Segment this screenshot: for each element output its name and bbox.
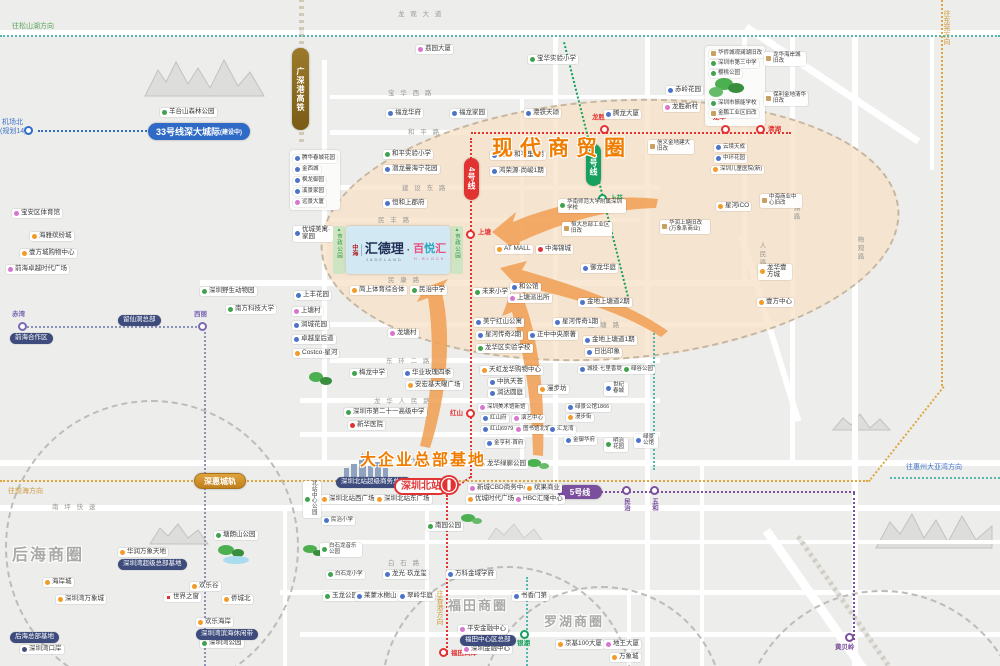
poi-text: 京基100大厦 xyxy=(565,641,602,648)
poi-label: 优城时代广场 xyxy=(466,495,516,504)
poi-label: 万科金域学府 xyxy=(446,570,496,579)
metro-station-label: 西丽 xyxy=(194,312,207,319)
poi-label: Costco·星河 xyxy=(293,349,339,358)
poi-label: 深圳市第二十一高级中学 xyxy=(344,408,427,417)
poi-text: 书香门第 xyxy=(521,593,547,600)
poi-o-icon xyxy=(568,415,573,420)
poi-text: 世界之窗 xyxy=(173,594,199,601)
poi-text: 赤岭花园 xyxy=(675,87,701,94)
poi-text: 港铁天颂 xyxy=(533,110,559,117)
poi-b-icon xyxy=(295,189,300,194)
line33-pill: 33号线深大城际(建设中) xyxy=(148,123,250,140)
poi-b-icon xyxy=(294,337,299,342)
poi-o-icon xyxy=(352,288,357,293)
poi-label: 溪景家园 xyxy=(293,188,326,196)
coast-line-south xyxy=(204,332,206,666)
poi-text: 腾龙大厦 xyxy=(613,111,639,118)
poi-label: 演艺中心 xyxy=(512,415,545,423)
poi-text: 世纪春城 xyxy=(613,383,626,395)
poi-label: 腾龙大厦 xyxy=(604,110,641,119)
poi-text: 欢乐谷 xyxy=(199,583,219,590)
poi-label: 平安金融中心 xyxy=(458,625,508,634)
poi-text: 深圳湾万象城 xyxy=(65,596,104,603)
poi-b-icon xyxy=(716,145,721,150)
coast-line xyxy=(22,326,205,328)
poi-text: 壹方城购物中心 xyxy=(29,250,75,257)
direction-label: 往东莞方向 xyxy=(941,10,951,45)
poi-label: 龙华海岸城旧改 xyxy=(764,52,806,66)
poi-label: 深圳金融中心 xyxy=(462,645,512,654)
park-strip-left: ▲ 市政公园 xyxy=(333,226,345,274)
poi-p-icon xyxy=(510,296,515,301)
road xyxy=(930,36,934,170)
poi-label: 海雅缤纷城 xyxy=(30,232,74,241)
poi-text: 深圳儿童医院(新) xyxy=(720,167,762,173)
poi-b-icon xyxy=(385,201,390,206)
poi-text: 新城CBD商务中心 xyxy=(477,485,530,492)
poi-text: 华南师范大学附属深圳学校 xyxy=(567,200,624,212)
poi-text: 信义金地建大旧改 xyxy=(657,141,692,153)
poi-g-icon xyxy=(624,367,629,372)
poi-text: 平安金融中心 xyxy=(467,626,506,633)
poi-label: 深圳北站西广场 xyxy=(320,495,377,504)
poi-label: 正中中央原著 xyxy=(528,331,578,340)
metro-station-icon xyxy=(18,322,27,331)
poi-g-icon xyxy=(711,61,716,66)
poi-r-icon xyxy=(538,247,543,252)
poi-text: 深圳湾公园 xyxy=(209,640,242,647)
poi-text: 海岸城 xyxy=(52,579,72,586)
poi-b-icon xyxy=(487,441,492,446)
poi-text: 宝安区体育馆 xyxy=(21,210,60,217)
poi-t-icon xyxy=(766,56,771,61)
poi-text: 润达圆庭 xyxy=(497,390,523,397)
poi-text: 深圳野生动物园 xyxy=(209,288,255,295)
poi-label: 欢乐谷 xyxy=(190,582,221,591)
poi-text: 绿景公馆 xyxy=(643,435,656,447)
poi-label: 龙胜新村 xyxy=(663,103,700,112)
poi-o-icon xyxy=(22,251,27,256)
metro-station-label: 红山 xyxy=(450,411,463,418)
poi-g-icon xyxy=(202,289,207,294)
metro-station-icon xyxy=(439,648,448,657)
metro-station-label: 上塘 xyxy=(478,230,491,237)
poi-b-icon xyxy=(483,427,488,432)
poi-label: 云境天成 xyxy=(714,144,747,152)
poi-text: 缤果商业 xyxy=(534,485,560,492)
poi-label: 南方科技大学 xyxy=(226,305,276,314)
poi-label: 明治花园 xyxy=(604,438,628,452)
poi-label: 星河传奇1期 xyxy=(553,318,600,327)
poi-g-icon xyxy=(322,547,327,552)
poi-b-icon xyxy=(636,438,641,443)
poi-label: 港铁天颂 xyxy=(524,109,561,118)
poi-text: 深圳美术馆新馆 xyxy=(487,405,526,411)
poi-g-icon xyxy=(162,110,167,115)
poi-label: 红山府 xyxy=(481,415,509,423)
road-name-label: 宝 华 西 路 xyxy=(388,87,433,97)
poi-text: 龙塘村 xyxy=(397,330,417,337)
poi-text: 华润万象天地 xyxy=(127,549,166,556)
line5-south xyxy=(853,493,855,640)
poi-text: 金御华府 xyxy=(573,438,595,444)
poi-text: 星河iCO xyxy=(725,203,749,210)
poi-text: 明治花园 xyxy=(613,439,626,451)
poi-p-icon xyxy=(606,642,611,647)
poi-text: 民治中学 xyxy=(419,287,445,294)
poi-text: 红山府 xyxy=(490,416,507,422)
poi-label: 深圳美术馆新馆 xyxy=(478,404,528,412)
poi-label: 新华医院 xyxy=(348,421,385,430)
poi-text: 和平实验小学 xyxy=(392,151,431,158)
poi-label: 世界之窗 xyxy=(164,593,201,602)
poi-label: 深圳儿童医院(新) xyxy=(711,166,764,174)
poi-label: 汇龙湾 xyxy=(548,426,576,434)
metro-station-icon xyxy=(466,230,475,239)
poi-label: 漫步街 xyxy=(566,414,594,422)
poi-text: 莱蒙水榭山 xyxy=(364,593,397,600)
poi-text: 深圳市振能学校 xyxy=(718,101,757,107)
poi-g-icon xyxy=(530,57,535,62)
poi-b-icon xyxy=(483,416,488,421)
poi-b-icon xyxy=(580,300,585,305)
poi-b-icon xyxy=(296,293,301,298)
poi-text: 保利金地清华旧改 xyxy=(773,93,806,105)
poi-label: 信义金地建大旧改 xyxy=(648,140,694,154)
metro-station-icon xyxy=(756,125,765,134)
poi-label: 红山6979 xyxy=(481,426,515,434)
poi-text: 白石龙小学 xyxy=(335,572,363,578)
road-name-label: 东 环 二 路 xyxy=(386,355,431,365)
poi-label: 壹方中心 xyxy=(757,298,794,307)
poi-b-icon xyxy=(606,112,611,117)
poi-label: 华侨城观澜湖旧改 xyxy=(709,50,764,58)
poi-text: HBC汇隆中心 xyxy=(523,496,563,503)
direction-label: 往前海方向 xyxy=(8,486,43,496)
poi-label: 赤岭花园 xyxy=(666,86,703,95)
poi-b-icon xyxy=(405,371,410,376)
title-enterprise-base: 大企业总部基地 xyxy=(360,446,486,470)
poi-b-icon xyxy=(295,178,300,183)
poi-text: 地王大厦 xyxy=(613,641,639,648)
poi-label: 世纪春城 xyxy=(604,382,628,396)
poi-g-icon xyxy=(475,290,480,295)
poi-b-icon xyxy=(448,572,453,577)
poi-b-icon xyxy=(566,438,571,443)
poi-text: 万科金域学府 xyxy=(455,571,494,578)
poi-b-icon xyxy=(385,167,390,172)
poi-label: 前海卓越时代广场 xyxy=(6,265,69,274)
poi-label: 枫龙御园 xyxy=(293,177,326,185)
poi-label: 深圳野生动物园 xyxy=(200,287,257,296)
poi-text: 龙华区实验学校 xyxy=(485,345,531,352)
poi-b-icon xyxy=(583,266,588,271)
poi-text: 塘朗山公园 xyxy=(223,532,256,539)
metro-station-icon xyxy=(520,630,529,639)
map-canvas: 广深港高铁 xyxy=(0,0,1000,666)
poi-o-icon xyxy=(58,597,63,602)
poi-text: 鸿荣源·尚峻1期 xyxy=(499,168,544,175)
poi-text: 万象城 xyxy=(619,654,639,661)
poi-o-icon xyxy=(558,642,563,647)
poi-text: 深圳市第二十一高级中学 xyxy=(353,409,425,416)
poi-b-icon xyxy=(514,594,519,599)
poi-g-icon xyxy=(346,410,351,415)
poi-label: 绿景公馆 xyxy=(634,434,658,448)
gsg-rail-pill: 广深港高铁 xyxy=(292,48,309,130)
business-circle-title: 后海商圈 xyxy=(12,541,84,565)
road-name-label: 民 康 路 xyxy=(388,274,421,284)
poi-text: 龙华绿廊公园 xyxy=(487,461,526,468)
mid-dashed-line xyxy=(653,330,655,470)
poi-g-icon xyxy=(711,101,716,106)
poi-g-icon xyxy=(305,497,310,502)
poi-p-icon xyxy=(514,416,519,421)
poi-label: 龙华区实验学校 xyxy=(476,344,533,353)
poi-text: 云境天成 xyxy=(723,145,745,151)
area-pill: 深圳湾超级总部基地 xyxy=(118,559,187,570)
poi-label: 白石龙音乐公园 xyxy=(320,543,362,557)
shenhui-rail-north xyxy=(941,0,943,386)
poi-label: 中执天荟 xyxy=(488,378,525,387)
poi-o-icon xyxy=(497,247,502,252)
poi-g-icon xyxy=(328,572,333,577)
poi-text: 漫步街 xyxy=(575,415,592,421)
poi-g-icon xyxy=(560,203,565,208)
poi-label: 美宁红山公寓 xyxy=(474,318,524,327)
poi-text: 正中中央原著 xyxy=(537,332,576,339)
poi-text: 中环花园 xyxy=(723,156,745,162)
poi-text: 星河传奇2期 xyxy=(485,332,521,339)
poi-text: 优城美寓·家园 xyxy=(302,227,331,241)
poi-b-icon xyxy=(512,285,517,290)
poi-text: 绿景公馆1866 xyxy=(575,405,609,411)
poi-p-icon xyxy=(516,427,521,432)
poi-g-icon xyxy=(202,641,207,646)
poi-text: 金亨利·首府 xyxy=(494,441,523,447)
poi-label: 绿谷公园 xyxy=(622,366,655,374)
poi-r-icon xyxy=(350,423,355,428)
road-name-label: 南 坪 快 速 xyxy=(52,501,97,511)
poi-text: 龙光·玖龙玺 xyxy=(392,571,427,578)
poi-b-icon xyxy=(555,320,560,325)
poi-text: 樱桃公园 xyxy=(718,71,740,77)
poi-g-icon xyxy=(216,533,221,538)
poi-o-icon xyxy=(198,620,203,625)
poi-text: 南园公园 xyxy=(435,523,461,530)
poi-b-icon xyxy=(357,594,362,599)
station-name-pill: 深圳北站 xyxy=(394,478,448,495)
poi-n-icon xyxy=(22,647,27,652)
poi-label: 远景大厦 xyxy=(293,199,326,207)
poi-o-icon xyxy=(718,204,723,209)
poi-label: 简上体育综合体 xyxy=(350,286,407,295)
poi-b-icon xyxy=(295,231,300,236)
poi-text: 华润上塘旧改(万象系商业) xyxy=(669,221,708,233)
metro-station-label: 黄贝岭 xyxy=(835,645,855,652)
poi-o-icon xyxy=(295,351,300,356)
poi-label: 中海商业中心旧改 xyxy=(760,194,802,208)
poi-label: 华润万象天地 xyxy=(118,548,168,557)
poi-text: 汇龙湾 xyxy=(557,427,574,433)
metro-station-label: 银湖 xyxy=(517,641,530,648)
road xyxy=(330,540,1000,544)
poi-label: 龙光·玖龙玺 xyxy=(383,570,429,579)
poi-text: 腾华春城花园 xyxy=(302,156,335,162)
poi-t-icon xyxy=(711,111,716,116)
poi-text: 绿谷公园 xyxy=(631,367,653,373)
poi-p-icon xyxy=(294,309,299,314)
poi-t-icon xyxy=(762,198,767,203)
poi-label: 金地上塘道1期 xyxy=(583,336,637,345)
poi-label: 潜龙曼海宁花园 xyxy=(383,165,440,174)
poi-label: 中海锦城 xyxy=(536,245,573,254)
poi-text: 白石龙音乐公园 xyxy=(329,544,360,556)
poi-t-icon xyxy=(766,96,771,101)
road xyxy=(300,432,660,437)
poi-o-icon xyxy=(45,580,50,585)
huizhou-direction-line xyxy=(890,477,1000,479)
poi-label: 海岸城 xyxy=(43,578,74,587)
poi-g-icon xyxy=(428,524,433,529)
poi-g-icon xyxy=(478,346,483,351)
poi-text: 未来小学 xyxy=(482,289,508,296)
poi-text: 北站中心公园 xyxy=(312,482,319,517)
poi-label: 金亨利·首府 xyxy=(485,440,525,448)
poi-label: 城投·七里香堤 xyxy=(578,366,624,374)
poi-label: 安宏基天曜广场 xyxy=(406,381,463,390)
poi-text: 图书馆北馆 xyxy=(523,427,551,433)
poi-text: Costco·星河 xyxy=(302,350,337,357)
poi-b-icon xyxy=(492,169,497,174)
poi-text: 壹方中心 xyxy=(766,299,792,306)
poi-label: 深圳湾万象城 xyxy=(56,595,106,604)
poi-t-icon xyxy=(711,51,716,56)
area-pill: 福田中心区总部 xyxy=(460,635,516,646)
poi-label: 华业玫瑰四季 xyxy=(403,369,453,378)
poi-label: 天虹龙华购物中心 xyxy=(480,366,543,375)
east-circle xyxy=(740,590,1000,666)
poi-text: 深圳北站东广场 xyxy=(384,496,430,503)
poi-text: 南方科技大学 xyxy=(235,306,274,313)
poi-label: 深圳市振能学校 xyxy=(709,100,759,108)
poi-g-icon xyxy=(385,152,390,157)
metro-station-icon xyxy=(198,322,207,331)
road-name-label: 龙 华 人 民 路 xyxy=(374,395,432,405)
poi-text: 梅龙中学 xyxy=(359,370,385,377)
road-name-label: 龙 观 大 道 xyxy=(398,8,443,18)
poi-label: 深圳北站东广场 xyxy=(375,495,432,504)
poi-label: 宝华实验小学 xyxy=(528,55,578,64)
poi-o-icon xyxy=(192,584,197,589)
poi-o-icon xyxy=(713,167,718,172)
poi-label: 民治小学 xyxy=(322,517,355,525)
poi-label: 白石龙小学 xyxy=(326,571,365,579)
poi-text: 深圳市第三中学 xyxy=(718,61,757,67)
poi-label: 北站中心公园 xyxy=(303,481,321,518)
metro-station-icon xyxy=(845,633,854,642)
metro-station-label: 赤湾 xyxy=(12,312,25,319)
poi-label: 恒大总部工业区旧改 xyxy=(562,222,612,236)
poi-text: 溪景家园 xyxy=(302,189,324,195)
poi-label: 上塘村 xyxy=(292,307,323,316)
poi-text: 前海卓越时代广场 xyxy=(15,266,67,273)
poi-label: 华南师范大学附属深圳学校 xyxy=(558,199,626,213)
poi-label: HBC汇隆中心 xyxy=(514,495,565,504)
poi-label: 上丰花园 xyxy=(294,291,331,300)
poi-text: 金鹏工业区旧改 xyxy=(718,111,757,117)
poi-b-icon xyxy=(716,156,721,161)
poi-p-icon xyxy=(480,405,485,410)
poi-text: 中执天荟 xyxy=(497,379,523,386)
poi-label: 京基100大厦 xyxy=(556,640,604,649)
poi-label: 金地上塘道2期 xyxy=(578,298,632,307)
poi-b-icon xyxy=(295,167,300,172)
logo-brand: 中海 xyxy=(350,244,362,256)
poi-label: 深圳湾口岸 xyxy=(20,645,64,654)
area-pill: 留仙洞总部 xyxy=(118,315,161,326)
poi-text: 金西城 xyxy=(302,167,319,173)
poi-b-icon xyxy=(580,367,585,372)
poi-text: 海雅缤纷城 xyxy=(39,233,72,240)
poi-label: 星河iCO xyxy=(716,202,751,211)
metro-station-label: 五和 xyxy=(650,498,657,511)
poi-text: 龙华海岸城旧改 xyxy=(773,53,804,65)
direction-label: 往香港方向 xyxy=(434,590,444,625)
poi-b-icon xyxy=(550,427,555,432)
direction-label: 往松山湖方向 xyxy=(12,21,54,31)
road-name-label: 民 丰 路 xyxy=(378,214,411,224)
poi-label: 书香门第 xyxy=(512,592,549,601)
poi-g-icon xyxy=(352,371,357,376)
poi-label: 金御华府 xyxy=(564,437,597,445)
poi-o-icon xyxy=(408,383,413,388)
poi-label: 新城CBD商务中心 xyxy=(468,484,532,493)
poi-text: 荔园大厦 xyxy=(425,46,451,53)
logo-sub2: H-BLOCK xyxy=(414,256,446,261)
poi-o-icon xyxy=(540,387,545,392)
poi-text: 润城花园 xyxy=(301,322,327,329)
poi-o-icon xyxy=(224,597,229,602)
poi-text: 漫步坊 xyxy=(547,386,567,393)
project-logo: 中海 汇德理 JADELAND · 百悦汇 H-BLOCK xyxy=(346,226,450,274)
poi-text: 龙华壹方城 xyxy=(767,265,790,279)
poi-o-icon xyxy=(120,550,125,555)
poi-b-icon xyxy=(587,350,592,355)
road-name-label: 白 石 路 xyxy=(388,557,421,567)
poi-label: AT MALL xyxy=(495,245,533,254)
poi-p-icon xyxy=(390,331,395,336)
poi-b-icon xyxy=(490,380,495,385)
poi-b-icon xyxy=(478,333,483,338)
poi-text: 民治小学 xyxy=(331,518,353,524)
metro-station-icon xyxy=(650,486,659,495)
poi-text: 中海商业中心旧改 xyxy=(769,195,800,207)
logo-name2: 百悦汇 xyxy=(413,240,446,256)
poi-b-icon xyxy=(476,320,481,325)
poi-text: 龙胜新村 xyxy=(672,104,698,111)
poi-label: 图书馆北馆 xyxy=(514,426,553,434)
poi-label: 金西城 xyxy=(293,166,321,174)
yinhu-dashed-line xyxy=(526,577,528,666)
poi-text: 上塘派出所 xyxy=(517,295,550,302)
poi-text: 红山6979 xyxy=(490,427,513,433)
title-modern-cbd: 现代商贸圈 xyxy=(492,132,632,162)
poi-text: 美宁红山公寓 xyxy=(483,319,522,326)
poi-b-icon xyxy=(388,111,393,116)
poi-text: 深圳北站西广场 xyxy=(329,496,375,503)
poi-label: 龙塘村 xyxy=(388,329,419,338)
